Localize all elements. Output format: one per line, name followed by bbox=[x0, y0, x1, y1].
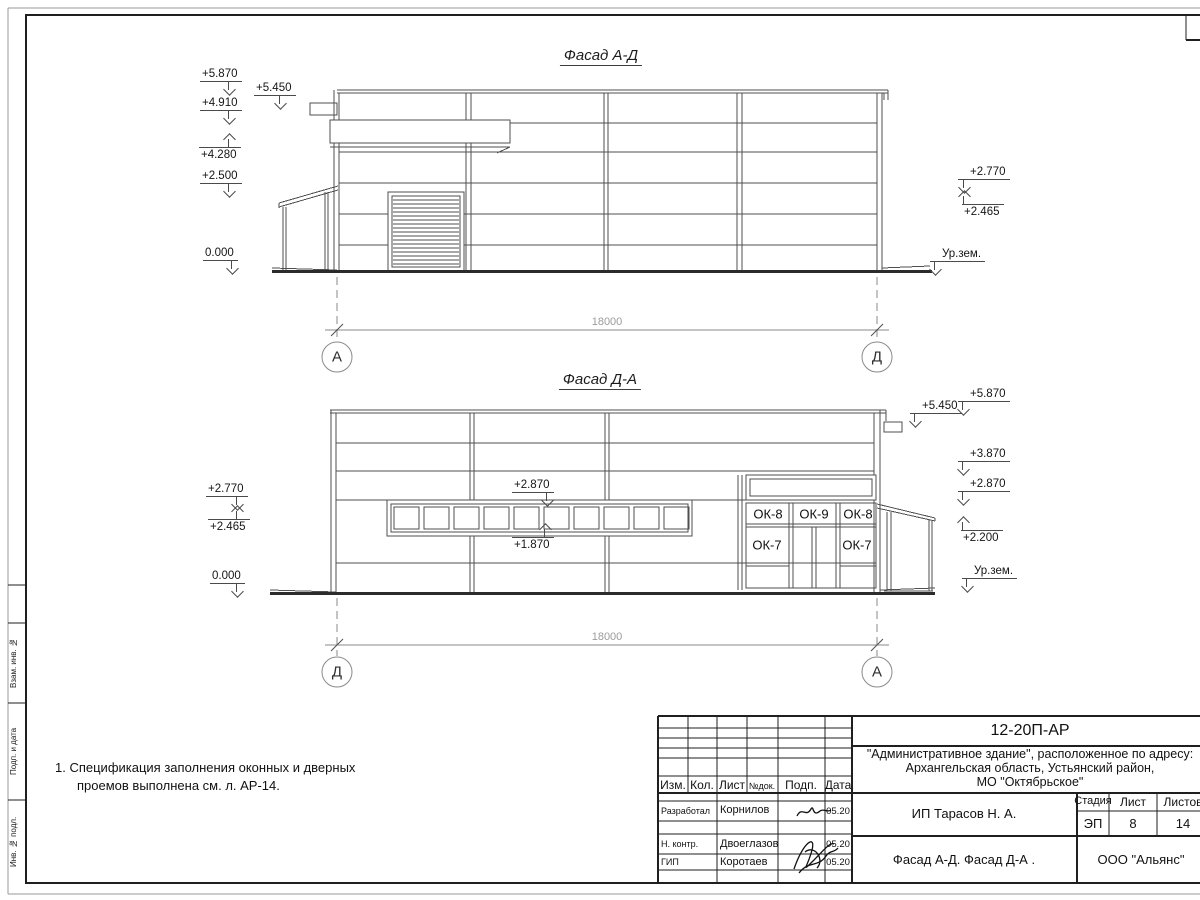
sheet-header: Лист bbox=[1120, 795, 1146, 809]
row-name-gip: Коротаев bbox=[720, 856, 768, 868]
axis-mark-a-top: А bbox=[332, 349, 342, 366]
elevation-mark: +2.870 bbox=[512, 479, 554, 493]
col-header-izm: Изм. bbox=[660, 778, 686, 792]
sheets-header: Листов bbox=[1164, 795, 1200, 809]
facade-a-d-title-wrap: Фасад А-Д bbox=[560, 47, 642, 65]
elevation-arrow-icon bbox=[226, 261, 238, 274]
row-role-developer: Разработал bbox=[661, 806, 710, 816]
row-date-ncontrol: 05.20 bbox=[826, 839, 850, 850]
row-name-developer: Корнилов bbox=[720, 804, 769, 816]
row-name-ncontrol: Двоеглазов bbox=[720, 838, 778, 850]
strip-cell-podp: Подп. и дата bbox=[9, 705, 25, 798]
elevation-arrow-icon bbox=[909, 414, 921, 427]
col-header-data: Дата bbox=[825, 778, 852, 792]
elevation-arrow-icon bbox=[929, 262, 941, 275]
elevation-mark: +5.870 bbox=[958, 388, 1010, 402]
col-header-list: Лист bbox=[719, 778, 745, 792]
elevation-mark: +1.870 bbox=[512, 537, 554, 551]
row-role-gip: ГИП bbox=[661, 857, 679, 867]
axis-mark-d-top: Д bbox=[872, 349, 882, 366]
doc-number: 12-20П-АР bbox=[990, 722, 1069, 740]
elevation-arrow-icon bbox=[541, 493, 553, 506]
dimension-label-bottom: 18000 bbox=[592, 631, 623, 643]
window-label-ok7-left: ОК-7 bbox=[752, 538, 781, 553]
sheets-value: 14 bbox=[1176, 816, 1190, 831]
facade-a-d-linework bbox=[272, 90, 930, 271]
window-label-ok8-right: ОК-8 bbox=[843, 507, 872, 522]
project-address-line3: МО "Октябрьское" bbox=[977, 775, 1084, 789]
ground-level-label: Ур.зем. bbox=[930, 248, 985, 262]
stage-value: ЭП bbox=[1084, 816, 1103, 831]
facade-d-a-title-wrap: Фасад Д-А bbox=[559, 371, 641, 389]
col-header-kol: Кол. bbox=[690, 778, 714, 792]
elevation-arrow-icon bbox=[957, 517, 969, 530]
elevation-arrow-icon bbox=[539, 524, 551, 537]
project-address-line1: "Административное здание", расположенное… bbox=[867, 747, 1193, 761]
elevation-arrow-icon bbox=[223, 184, 235, 197]
ground-level-label: Ур.зем. bbox=[962, 565, 1017, 579]
axis-mark-a-bottom: А bbox=[872, 664, 882, 681]
strip-cell-vzam: Взам. инв. № bbox=[9, 625, 25, 701]
elevation-arrow-icon bbox=[223, 82, 235, 95]
strip-cell-inv: Инв. № подл. bbox=[9, 802, 25, 881]
col-header-ndok: №док. bbox=[749, 781, 775, 791]
facade-d-a-title: Фасад Д-А bbox=[559, 371, 641, 390]
elevation-mark: +5.870 bbox=[200, 68, 242, 82]
row-date-developer: 05.20 bbox=[826, 806, 850, 817]
dimension-label-top: 18000 bbox=[592, 316, 623, 328]
elevation-mark: +2.500 bbox=[200, 170, 242, 184]
elevation-arrow-icon bbox=[958, 191, 970, 204]
elevation-arrow-icon bbox=[231, 506, 243, 519]
elevation-mark: +5.450 bbox=[910, 400, 962, 414]
sheet-value: 8 bbox=[1129, 816, 1136, 831]
elevation-mark: +2.465 bbox=[962, 204, 1004, 218]
drawing-sheet: Фасад А-Д Фасад Д-А 18000 18000 А Д Д А … bbox=[0, 0, 1200, 900]
elevation-mark: +2.870 bbox=[958, 478, 1010, 492]
elevation-mark: +2.770 bbox=[958, 166, 1010, 180]
elevation-arrow-icon bbox=[274, 96, 286, 109]
window-label-ok8-left: ОК-8 bbox=[753, 507, 782, 522]
axis-mark-d-bottom: Д bbox=[332, 664, 342, 681]
elevation-mark: 0.000 bbox=[210, 570, 245, 584]
stage-header: Стадия bbox=[1074, 795, 1112, 807]
elevation-mark: +2.770 bbox=[206, 483, 248, 497]
client-name: ИП Тарасов Н. А. bbox=[912, 806, 1017, 821]
elevation-arrow-icon bbox=[231, 584, 243, 597]
elevation-mark: +3.870 bbox=[958, 448, 1010, 462]
note-line-2: проемов выполнена см. л. АР-14. bbox=[77, 778, 280, 793]
elevation-arrow-icon bbox=[223, 111, 235, 124]
elevation-mark: +5.450 bbox=[254, 82, 296, 96]
drawing-title: Фасад А-Д. Фасад Д-А . bbox=[893, 852, 1035, 867]
elevation-mark: +4.910 bbox=[200, 97, 242, 111]
elevation-mark: +2.465 bbox=[208, 519, 250, 533]
window-label-ok9: ОК-9 bbox=[799, 507, 828, 522]
col-header-podp: Подп. bbox=[785, 778, 817, 792]
elevation-mark: +2.200 bbox=[961, 530, 1003, 544]
elevation-arrow-icon bbox=[957, 462, 969, 475]
elevation-mark: 0.000 bbox=[203, 247, 238, 261]
window-label-ok7-right: ОК-7 bbox=[842, 538, 871, 553]
row-role-ncontrol: Н. контр. bbox=[661, 839, 698, 849]
elevation-arrow-icon bbox=[961, 579, 973, 592]
facade-d-a-linework bbox=[270, 410, 935, 592]
elevation-arrow-icon bbox=[957, 492, 969, 505]
note-line-1: 1. Спецификация заполнения оконных и две… bbox=[55, 760, 355, 775]
row-date-gip: 05.20 bbox=[826, 857, 850, 868]
elevation-mark: +4.280 bbox=[199, 147, 241, 161]
elevation-arrow-icon bbox=[223, 134, 235, 147]
elevation-arrow-icon bbox=[957, 402, 969, 415]
project-address-line2: Архангельская область, Устьянский район, bbox=[906, 761, 1155, 775]
facade-a-d-title: Фасад А-Д bbox=[560, 47, 642, 66]
company-name: ООО "Альянс" bbox=[1098, 852, 1185, 867]
